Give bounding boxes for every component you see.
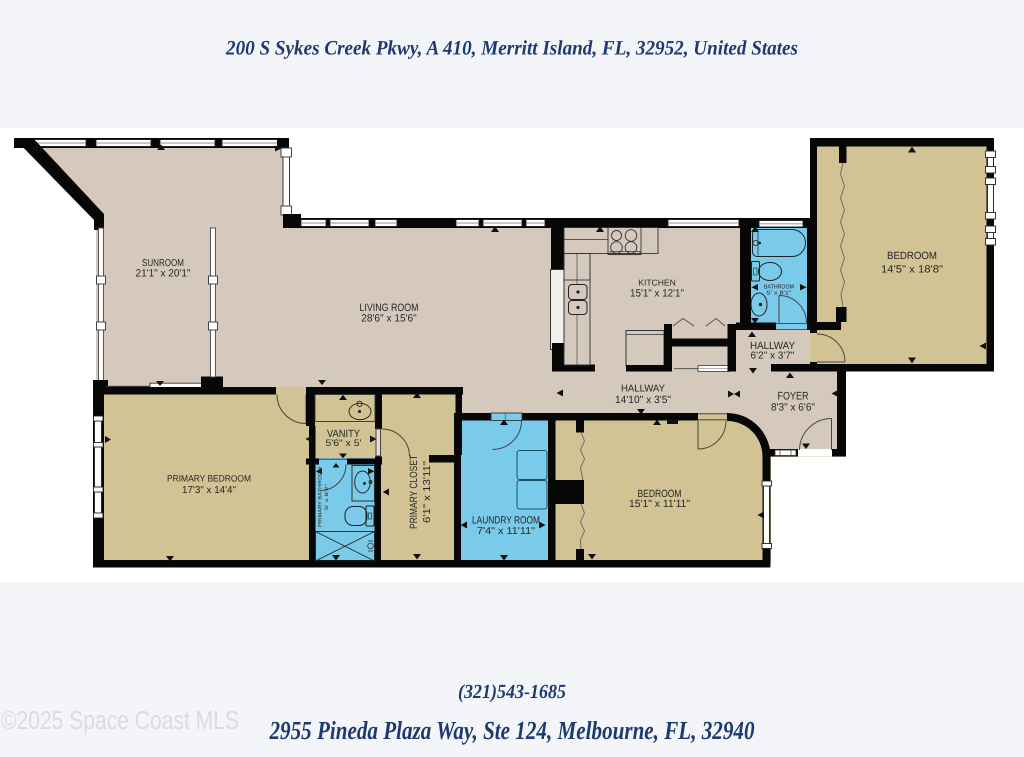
- svg-text:6'1" x 13'11": 6'1" x 13'11": [422, 460, 433, 523]
- svg-text:17'3" x 14'4": 17'3" x 14'4": [182, 485, 236, 496]
- svg-text:PRIMARY BATHROOM: PRIMARY BATHROOM: [318, 467, 324, 527]
- svg-text:LAUNDRY ROOM: LAUNDRY ROOM: [472, 515, 540, 527]
- svg-text:©2025 Space Coast MLS: ©2025 Space Coast MLS: [1, 705, 239, 735]
- svg-text:5' x 8'1": 5' x 8'1": [767, 291, 792, 297]
- svg-text:5' x 8'2": 5' x 8'2": [324, 483, 329, 510]
- svg-text:(321)543-1685: (321)543-1685: [458, 681, 566, 703]
- svg-text:8'3" x 6'6": 8'3" x 6'6": [771, 402, 815, 414]
- svg-text:PRIMARY CLOSET: PRIMARY CLOSET: [408, 455, 420, 529]
- svg-text:15'1" x 12'1": 15'1" x 12'1": [630, 288, 684, 300]
- svg-text:HALLWAY: HALLWAY: [621, 384, 665, 395]
- svg-text:28'6" x 15'6": 28'6" x 15'6": [361, 313, 417, 325]
- svg-text:KITCHEN: KITCHEN: [638, 278, 676, 288]
- svg-text:PRIMARY BEDROOM: PRIMARY BEDROOM: [167, 474, 251, 484]
- svg-text:21'1" x 20'1": 21'1" x 20'1": [136, 268, 191, 280]
- svg-text:15'1" x 11'11": 15'1" x 11'11": [629, 498, 690, 510]
- svg-text:14'5" x 18'8": 14'5" x 18'8": [881, 264, 943, 276]
- svg-text:2955 Pineda Plaza Way, Ste 124: 2955 Pineda Plaza Way, Ste 124, Melbourn…: [269, 716, 755, 745]
- svg-text:6'2" x 3'7": 6'2" x 3'7": [751, 351, 795, 362]
- svg-text:200 S Sykes Creek Pkwy, A 410,: 200 S Sykes Creek Pkwy, A 410, Merritt I…: [225, 38, 798, 60]
- svg-text:BEDROOM: BEDROOM: [887, 250, 937, 262]
- svg-text:14'10" x 3'5": 14'10" x 3'5": [615, 394, 671, 406]
- svg-text:7'4" x 11'11": 7'4" x 11'11": [477, 526, 535, 537]
- svg-text:5'6" x 5': 5'6" x 5': [326, 438, 362, 449]
- svg-text:BATHROOM: BATHROOM: [764, 284, 794, 291]
